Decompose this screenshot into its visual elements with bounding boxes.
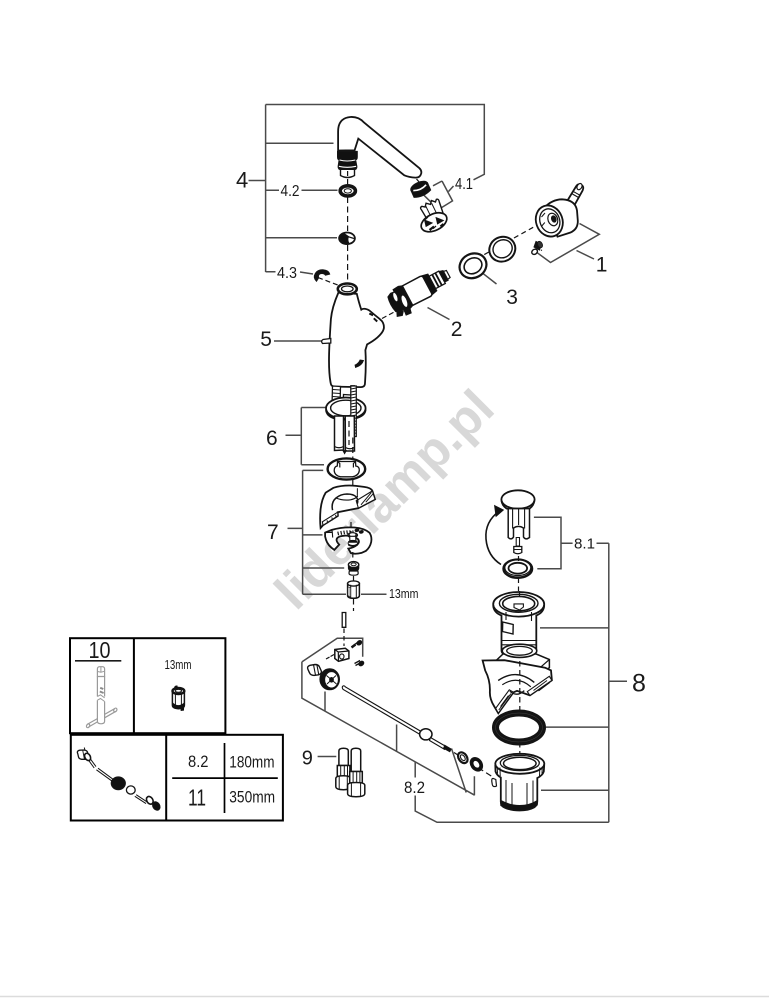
svg-text:8.2: 8.2 [188, 753, 209, 771]
svg-text:10: 10 [89, 637, 111, 663]
svg-text:5: 5 [260, 328, 272, 351]
svg-text:1: 1 [596, 253, 608, 276]
svg-text:8.1: 8.1 [574, 537, 595, 553]
svg-text:4.1: 4.1 [455, 176, 473, 193]
svg-text:9: 9 [302, 748, 313, 770]
svg-text:6: 6 [266, 427, 278, 450]
svg-text:11: 11 [188, 785, 206, 811]
svg-text:8.2: 8.2 [404, 779, 425, 797]
svg-text:13mm: 13mm [165, 657, 192, 672]
svg-text:3: 3 [506, 286, 518, 309]
svg-text:13mm: 13mm [389, 586, 419, 601]
svg-text:7: 7 [267, 521, 279, 544]
svg-text:8: 8 [632, 670, 646, 698]
svg-text:350mm: 350mm [229, 789, 275, 807]
svg-text:liderlamp.pl: liderlamp.pl [263, 379, 504, 620]
svg-text:2: 2 [451, 318, 463, 341]
svg-text:4.2: 4.2 [281, 183, 300, 200]
svg-text:180mm: 180mm [229, 753, 274, 771]
svg-text:4: 4 [236, 168, 248, 193]
svg-text:4.3: 4.3 [277, 265, 297, 282]
